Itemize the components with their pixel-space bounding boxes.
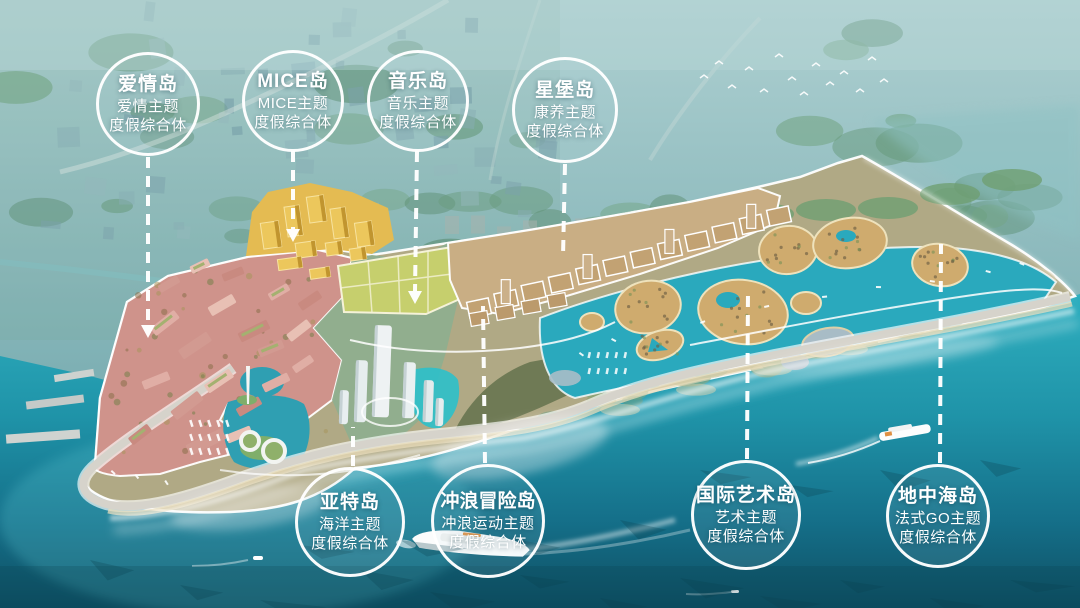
callout-mice-island: MICE岛 MICE主题 度假综合体 [242, 50, 344, 152]
villa-dot [629, 293, 632, 296]
leader-surf-adventure-island [483, 306, 485, 463]
villa-dot [663, 314, 666, 317]
villa-dot [927, 251, 930, 254]
ground-dot [310, 319, 315, 324]
island-name: 国际艺术岛 [696, 484, 796, 508]
villa-dot [633, 289, 636, 292]
villa-dot [658, 288, 661, 291]
villa-dot [720, 323, 723, 326]
callout-love-island: 爱情岛 爱情主题 度假综合体 [96, 52, 200, 156]
villa-dot [834, 252, 837, 255]
villa-dot [661, 295, 664, 298]
beach-town-tower [501, 280, 510, 304]
city-block [471, 216, 485, 234]
ground-dot [135, 292, 142, 299]
island-theme: MICE主题 [258, 94, 329, 113]
villa-dot [774, 254, 777, 257]
city-block [434, 164, 458, 176]
island-type: 度假综合体 [109, 116, 187, 135]
ground-dot [125, 348, 128, 351]
ground-dot [181, 307, 184, 310]
beach-town-block [630, 248, 655, 268]
beach-town-block [712, 223, 737, 243]
villa-dot [843, 256, 846, 259]
villa-dot [773, 233, 776, 236]
island-name: 地中海岛 [898, 485, 978, 509]
callout-surf-adventure-island: 冲浪冒险岛 冲浪运动主题 度假综合体 [431, 464, 545, 578]
ground-dot [246, 273, 252, 279]
island-theme: 艺术主题 [715, 508, 777, 527]
beach-town-tower [665, 229, 674, 253]
ground-dot [167, 392, 172, 397]
villa-dot [642, 346, 645, 349]
villa-dot [767, 261, 770, 264]
ground-dot [114, 399, 121, 406]
beach-town-block [495, 305, 515, 321]
ground-dot [108, 393, 114, 399]
forest-band [858, 197, 918, 219]
ground-dot [156, 291, 161, 296]
villa-dot [666, 318, 669, 321]
ground-dot [310, 333, 315, 338]
ground-dot [223, 354, 228, 359]
city-block [295, 159, 314, 174]
villa-dot [770, 323, 773, 326]
island-name: 爱情岛 [118, 73, 178, 97]
villa-dot [768, 320, 771, 323]
villa-dot [736, 297, 739, 300]
villa-dot [762, 290, 765, 293]
villa-dot [645, 345, 648, 348]
villa-dot [841, 238, 844, 241]
beach-town-block [603, 256, 628, 276]
villa-dot [659, 343, 662, 346]
beach-town-block [685, 231, 710, 251]
villa-dot [934, 275, 937, 278]
villa-dot [779, 261, 782, 264]
tree-cluster [9, 198, 73, 227]
ground-dot [120, 380, 127, 387]
villa-dot [645, 352, 648, 355]
city-block [57, 127, 80, 148]
ground-dot [256, 309, 260, 313]
island-type: 度假综合体 [449, 533, 527, 552]
villa-dot [919, 255, 922, 258]
ground-dot [124, 371, 130, 377]
villa-dot [926, 262, 929, 265]
callout-atlantis-island: 亚特岛 海洋主题 度假综合体 [295, 467, 405, 577]
villa-dot [736, 316, 739, 319]
villa-dot [853, 227, 856, 230]
city-block [103, 227, 114, 240]
villa-dot [829, 256, 832, 259]
villa-dot [656, 336, 659, 339]
city-block [445, 216, 459, 234]
villa-dot [734, 330, 737, 333]
island-theme: 音乐主题 [387, 94, 449, 113]
island-theme: 冲浪运动主题 [441, 514, 534, 533]
villa-dot [856, 240, 859, 243]
ground-dot [208, 364, 213, 369]
island-name: 冲浪冒险岛 [440, 490, 535, 514]
city-block [461, 191, 479, 206]
ground-dot [161, 309, 167, 315]
villa-dot [857, 248, 860, 251]
city-block [491, 176, 502, 184]
city-block [119, 191, 135, 204]
villa-dot [835, 250, 838, 253]
villa-dot [775, 257, 778, 260]
villa-dot [856, 236, 859, 239]
callout-international-art-island: 国际艺术岛 艺术主题 度假综合体 [691, 460, 801, 570]
city-block [347, 86, 365, 106]
beach-town-block [469, 311, 489, 327]
villa-dot [955, 257, 958, 260]
villa-dot [638, 300, 641, 303]
city-block [69, 80, 82, 92]
beach-town-block [521, 299, 541, 315]
ground-dot [254, 355, 258, 359]
villa-dot [629, 320, 632, 323]
villa-dot [641, 335, 644, 338]
beach-town-tower [583, 255, 592, 279]
island-type: 度假综合体 [254, 113, 332, 132]
island-theme: 康养主题 [534, 103, 596, 122]
island-type: 度假综合体 [899, 528, 977, 547]
villa-dot [932, 251, 935, 254]
villa-dot [805, 252, 808, 255]
ground-dot [324, 429, 328, 433]
city-block [84, 177, 107, 196]
villa-dot [664, 292, 667, 295]
villa-dot [676, 352, 679, 355]
island-name: 亚特岛 [320, 491, 380, 515]
villa-dot [828, 233, 831, 236]
villa-dot [730, 307, 733, 310]
beach-town-block [547, 293, 567, 309]
villa-dot [758, 305, 761, 308]
ground-dot [207, 279, 214, 286]
villa-dot [798, 245, 801, 248]
city-block [232, 126, 243, 135]
city-block [174, 222, 185, 229]
ground-dot [192, 411, 195, 414]
ground-dot [182, 293, 187, 298]
ground-dot [204, 422, 208, 426]
island-theme: 爱情主题 [117, 97, 179, 116]
villa-dot [845, 246, 848, 249]
callout-mediterranean-island: 地中海岛 法式GO主题 度假综合体 [886, 464, 990, 568]
island-type: 度假综合体 [526, 122, 604, 141]
callout-music-island: 音乐岛 音乐主题 度假综合体 [367, 50, 469, 152]
villa-dot [644, 301, 647, 304]
island-type: 度假综合体 [311, 534, 389, 553]
villa-dot [653, 348, 656, 351]
island-type: 度假综合体 [379, 113, 457, 132]
villa-dot [665, 340, 668, 343]
villa-dot [780, 246, 783, 249]
forest-band [982, 169, 1042, 191]
tree-cluster [776, 116, 843, 146]
callout-star-castle-island: 星堡岛 康养主题 度假综合体 [512, 57, 618, 163]
island-name: MICE岛 [257, 70, 329, 94]
villa-dot [923, 255, 926, 258]
city-block [518, 210, 532, 217]
villa-dot [946, 261, 949, 264]
ground-dot [201, 374, 205, 378]
island-theme: 法式GO主题 [895, 509, 981, 528]
beach-town-tower [747, 204, 756, 228]
villa-dot [793, 246, 796, 249]
small-boat [876, 286, 881, 288]
ferry-boat [253, 556, 263, 560]
island-name: 音乐岛 [388, 70, 448, 94]
villa-dot [627, 305, 630, 308]
villa-dot [951, 260, 954, 263]
ground-dot [137, 348, 142, 353]
island-type: 度假综合体 [707, 527, 785, 546]
city-block [505, 181, 521, 196]
masterplan-canvas: 爱情岛 爱情主题 度假综合体 MICE岛 MICE主题 度假综合体 音乐岛 音乐… [0, 0, 1080, 608]
villa-dot [646, 305, 649, 308]
island-name: 星堡岛 [535, 79, 595, 103]
villa-dot [738, 307, 741, 310]
bottom-vignette [0, 566, 1080, 608]
beach-town-block [548, 273, 573, 293]
beach-town-block [521, 281, 546, 301]
villa-dot [656, 344, 659, 347]
beach-town-block [767, 206, 792, 226]
island-theme: 海洋主题 [319, 515, 381, 534]
